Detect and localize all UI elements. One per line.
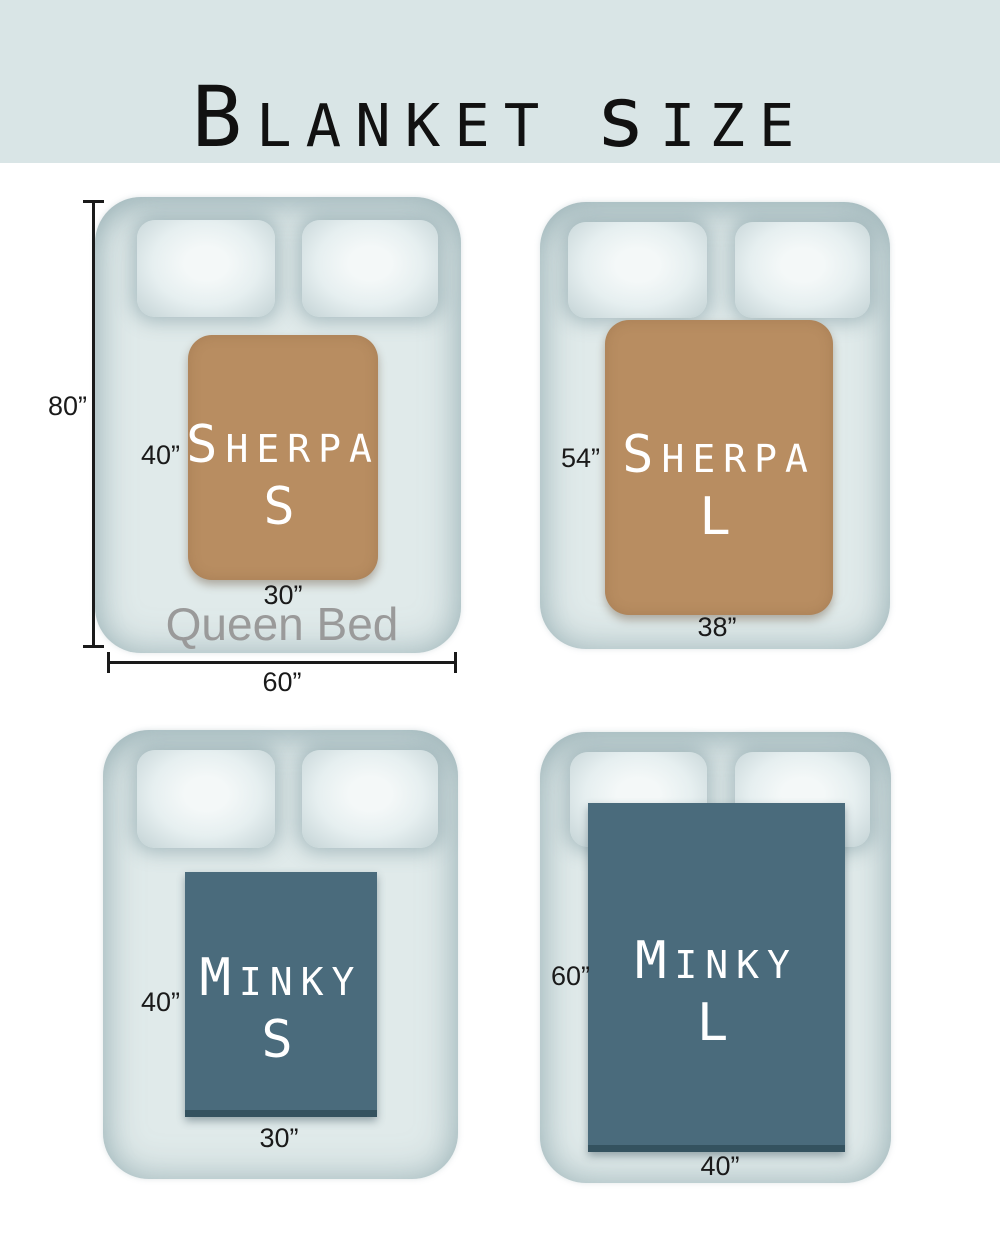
blanket-height-label: 60” [540,962,590,992]
blanket-size-chart: Blanketsize Sherpa S 40” 30” Queen Bed 8… [0,0,1000,1250]
blanket-size-letter: L [697,997,736,1049]
blanket-name-rest: inky [674,943,798,987]
blanket-product-name: Minky [635,935,798,987]
blanket-name-lead: M [635,931,674,991]
diagram-minky-l: Minky L 60” 40” [0,0,1000,1250]
blanket-width-label: 40” [670,1152,770,1182]
blanket-minky-l: Minky L [588,803,845,1152]
